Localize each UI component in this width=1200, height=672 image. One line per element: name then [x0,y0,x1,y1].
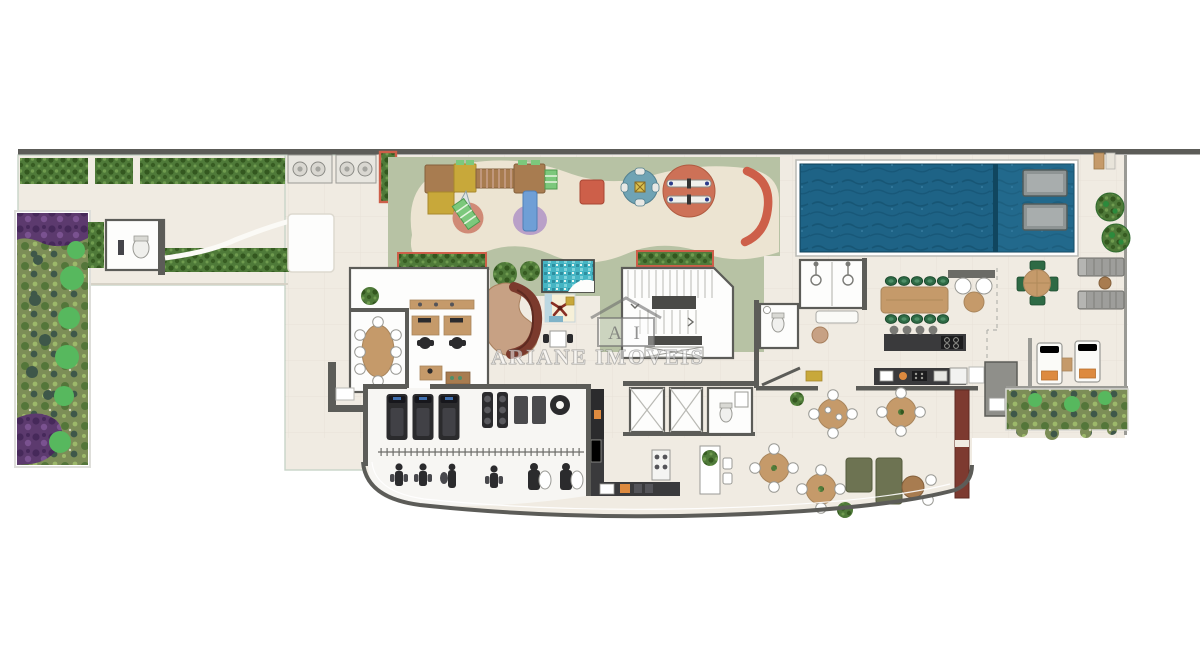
bush [520,261,540,281]
plant [361,287,379,305]
round-table [964,292,984,312]
fridge [950,368,967,384]
meeting-table [362,325,394,377]
wall-counter [948,270,995,278]
fan-deck [545,294,575,322]
sink [763,306,770,313]
side-table [1062,358,1072,371]
side-desk [420,366,442,380]
tree [1102,224,1130,252]
coffee-table [902,476,924,498]
site-boundary-wall [18,149,1200,155]
sink [600,484,614,494]
sofa [846,458,872,492]
treadmill [387,394,408,440]
play-cube [580,180,604,204]
entry-planter [88,222,104,268]
planter-box [398,253,486,269]
floor-plan-canvas [0,0,1200,672]
grill [912,371,927,381]
wall-stub [158,219,165,275]
planter-box-stairs [637,251,713,266]
steps [545,170,557,189]
massage-bed [1037,343,1062,384]
deck-table [1099,277,1111,289]
stair-bench [648,336,702,345]
slide [523,191,537,231]
treadmill [439,394,460,440]
gym [363,384,604,506]
elevator-core [623,381,755,436]
sun-lounger [1078,291,1124,309]
stairs [622,268,733,358]
bench [816,311,858,323]
pool-divider [993,164,998,252]
gym-mat [532,396,546,424]
bistro-table [976,278,992,294]
wc-sink [118,240,124,255]
pouf [812,327,828,343]
walkway-hedge [165,248,290,272]
stair-landing [652,296,696,309]
roof-equipment-units [288,155,376,183]
entry-patio [288,214,334,272]
massage-bed [1075,341,1100,382]
microwave [880,371,893,381]
waiting-chairs [446,372,470,384]
shower-stall [735,392,748,407]
gym-mat [514,396,528,424]
floor-plan-image: A I ARIANE IMOVEIS [0,0,1200,672]
stove [652,450,670,480]
bistro-table [955,278,971,294]
bar-counter [874,367,984,385]
top-hedge-row [20,158,285,184]
treadmill [413,394,434,440]
sun-lounger [1078,258,1124,276]
left-garden [15,211,90,467]
plant [790,392,804,406]
seesaw-area [663,165,715,217]
plant [702,450,718,466]
tree [1096,193,1124,221]
bowl [899,372,907,380]
locker-bench [806,371,822,381]
